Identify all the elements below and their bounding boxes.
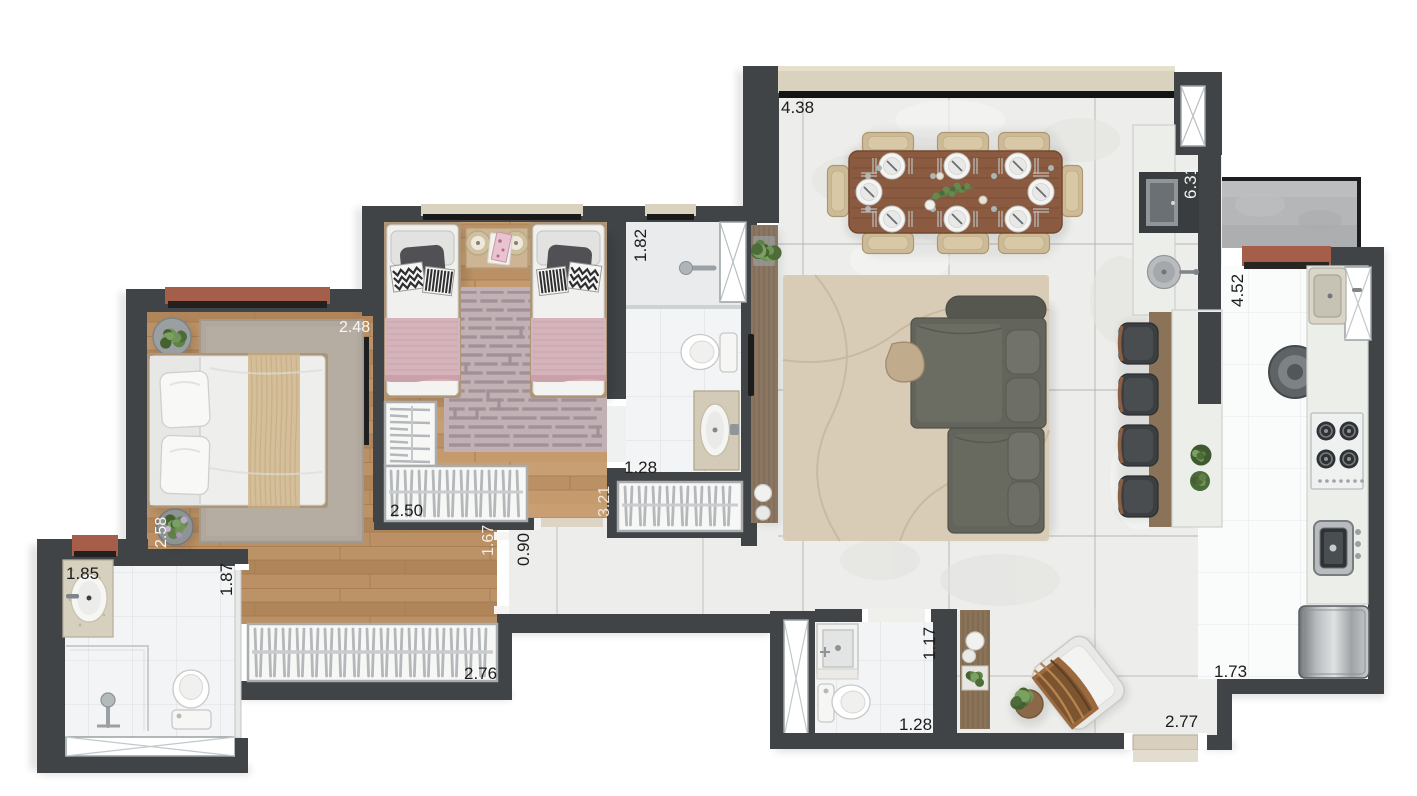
svg-text:2.58: 2.58 bbox=[153, 517, 170, 548]
svg-text:2.76: 2.76 bbox=[464, 664, 497, 683]
svg-text:4.52: 4.52 bbox=[1228, 274, 1247, 307]
svg-text:1.28: 1.28 bbox=[899, 715, 932, 734]
svg-text:1.85: 1.85 bbox=[66, 564, 99, 583]
svg-text:2.50: 2.50 bbox=[390, 501, 423, 520]
svg-text:3.21: 3.21 bbox=[596, 486, 613, 517]
svg-text:2.77: 2.77 bbox=[1165, 712, 1198, 731]
svg-text:1.17: 1.17 bbox=[920, 627, 939, 660]
svg-text:1.87: 1.87 bbox=[217, 563, 236, 596]
svg-text:2.48: 2.48 bbox=[339, 319, 370, 336]
svg-text:4.38: 4.38 bbox=[781, 98, 814, 117]
svg-text:6.31: 6.31 bbox=[1181, 166, 1200, 199]
svg-text:1.73: 1.73 bbox=[1214, 662, 1247, 681]
svg-text:0.90: 0.90 bbox=[514, 533, 533, 566]
svg-text:1.82: 1.82 bbox=[631, 229, 650, 262]
svg-text:1.67: 1.67 bbox=[480, 525, 497, 556]
svg-text:1.28: 1.28 bbox=[624, 458, 657, 477]
